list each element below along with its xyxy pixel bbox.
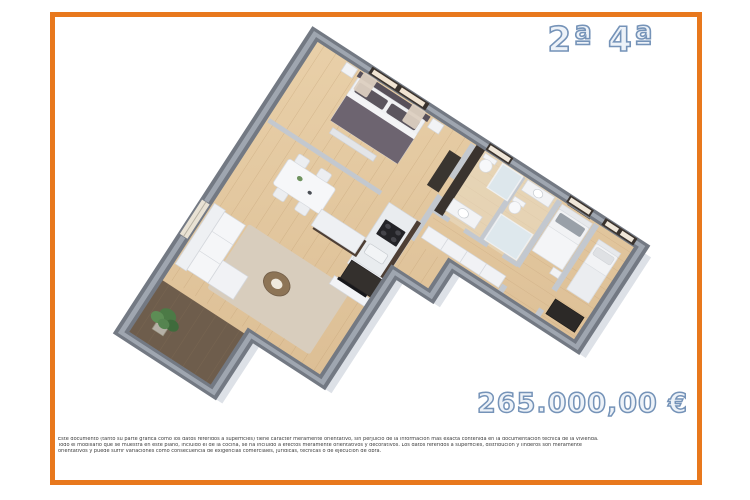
unit-label: 2ª 4ª — [547, 20, 655, 60]
disclaimer-text: Este documento (tanto su parte gráfica c… — [58, 437, 698, 455]
apartment-plan — [117, 28, 644, 500]
floorplan-render — [0, 0, 750, 500]
brochure-page: 2ª 4ª 265.000,00 € Este documento (tanto… — [0, 0, 750, 500]
disclaimer-line-3: orientativos y puede sufrir variaciones … — [58, 449, 698, 455]
price-label: 265.000,00 € — [477, 388, 688, 419]
